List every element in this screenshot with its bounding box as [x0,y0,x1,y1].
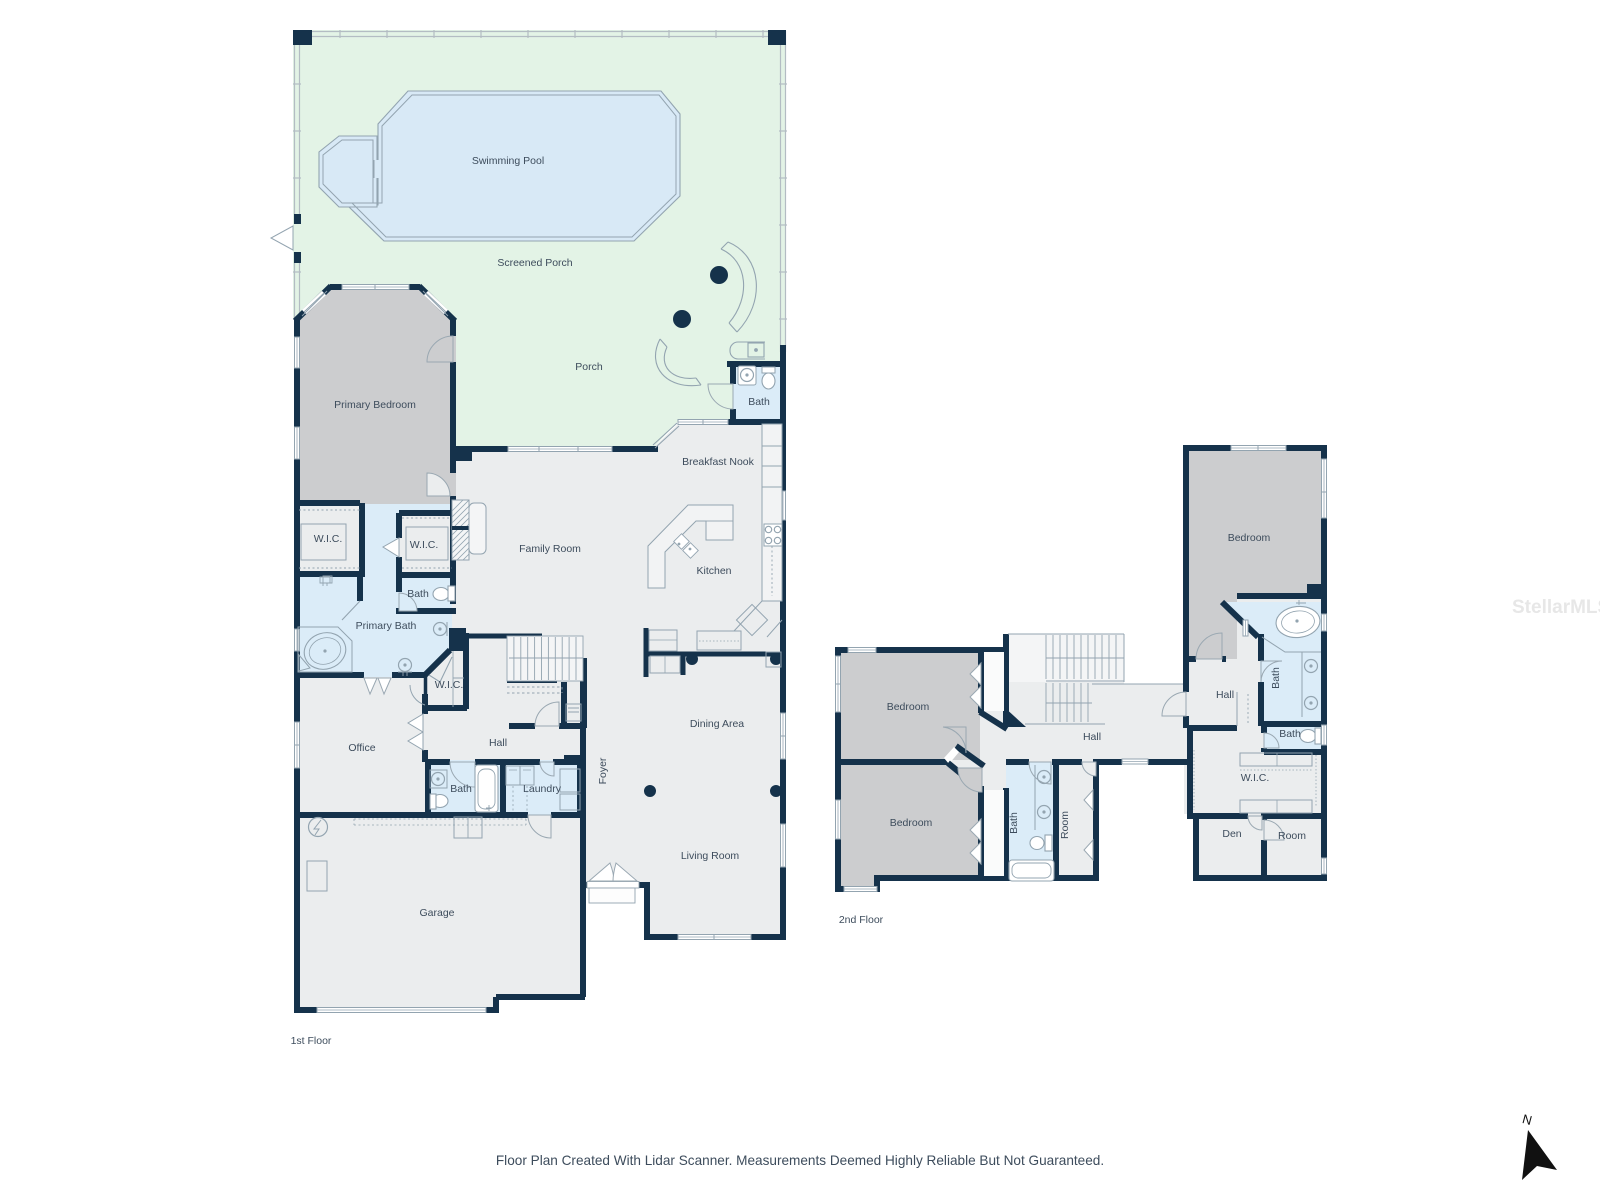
svg-text:W.I.C.: W.I.C. [435,679,464,691]
svg-text:StellarMLS: StellarMLS [1512,597,1600,618]
svg-text:Bath: Bath [748,396,770,408]
svg-text:W.I.C.: W.I.C. [1241,772,1270,784]
svg-text:2nd Floor: 2nd Floor [839,914,884,926]
svg-text:Breakfast Nook: Breakfast Nook [682,456,755,468]
svg-text:W.I.C.: W.I.C. [410,539,439,551]
svg-text:Bath: Bath [450,783,472,795]
svg-text:Room: Room [1059,811,1071,839]
svg-text:Living Room: Living Room [681,850,740,862]
svg-text:Bedroom: Bedroom [1228,532,1271,544]
svg-text:Hall: Hall [1216,689,1234,701]
svg-text:Laundry: Laundry [523,783,562,795]
svg-text:Bath: Bath [1270,667,1282,689]
svg-text:W.I.C.: W.I.C. [314,533,343,545]
svg-text:Foyer: Foyer [597,757,609,784]
svg-text:Office: Office [348,742,375,754]
svg-text:Family Room: Family Room [519,543,581,555]
svg-text:Garage: Garage [419,907,454,919]
svg-text:Den: Den [1222,828,1241,840]
svg-text:Kitchen: Kitchen [696,565,731,577]
svg-text:Bedroom: Bedroom [890,817,933,829]
svg-text:Dining Area: Dining Area [690,718,744,730]
svg-text:1st Floor: 1st Floor [291,1035,332,1047]
svg-text:Room: Room [1278,830,1306,842]
svg-text:Hall: Hall [489,737,507,749]
svg-text:Floor Plan Created With Lidar: Floor Plan Created With Lidar Scanner. M… [496,1153,1104,1168]
svg-text:Swimming Pool: Swimming Pool [472,155,544,167]
svg-text:Bath: Bath [1008,812,1020,834]
svg-text:Bedroom: Bedroom [887,701,930,713]
svg-text:Bath: Bath [407,588,429,600]
svg-text:Hall: Hall [1083,731,1101,743]
svg-text:Porch: Porch [575,361,603,373]
svg-text:Screened Porch: Screened Porch [497,257,572,269]
svg-text:Bath: Bath [1279,728,1301,740]
svg-text:Primary Bedroom: Primary Bedroom [334,399,416,411]
svg-text:Primary Bath: Primary Bath [356,620,417,632]
